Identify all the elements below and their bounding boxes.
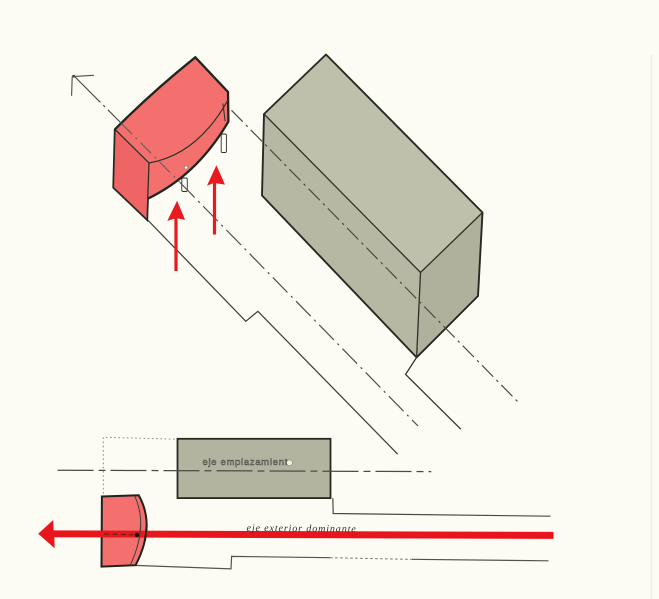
- svg-text:eje emplazamient: eje emplazamient: [203, 456, 288, 467]
- svg-text:eje exterior dominante: eje exterior dominante: [246, 523, 356, 535]
